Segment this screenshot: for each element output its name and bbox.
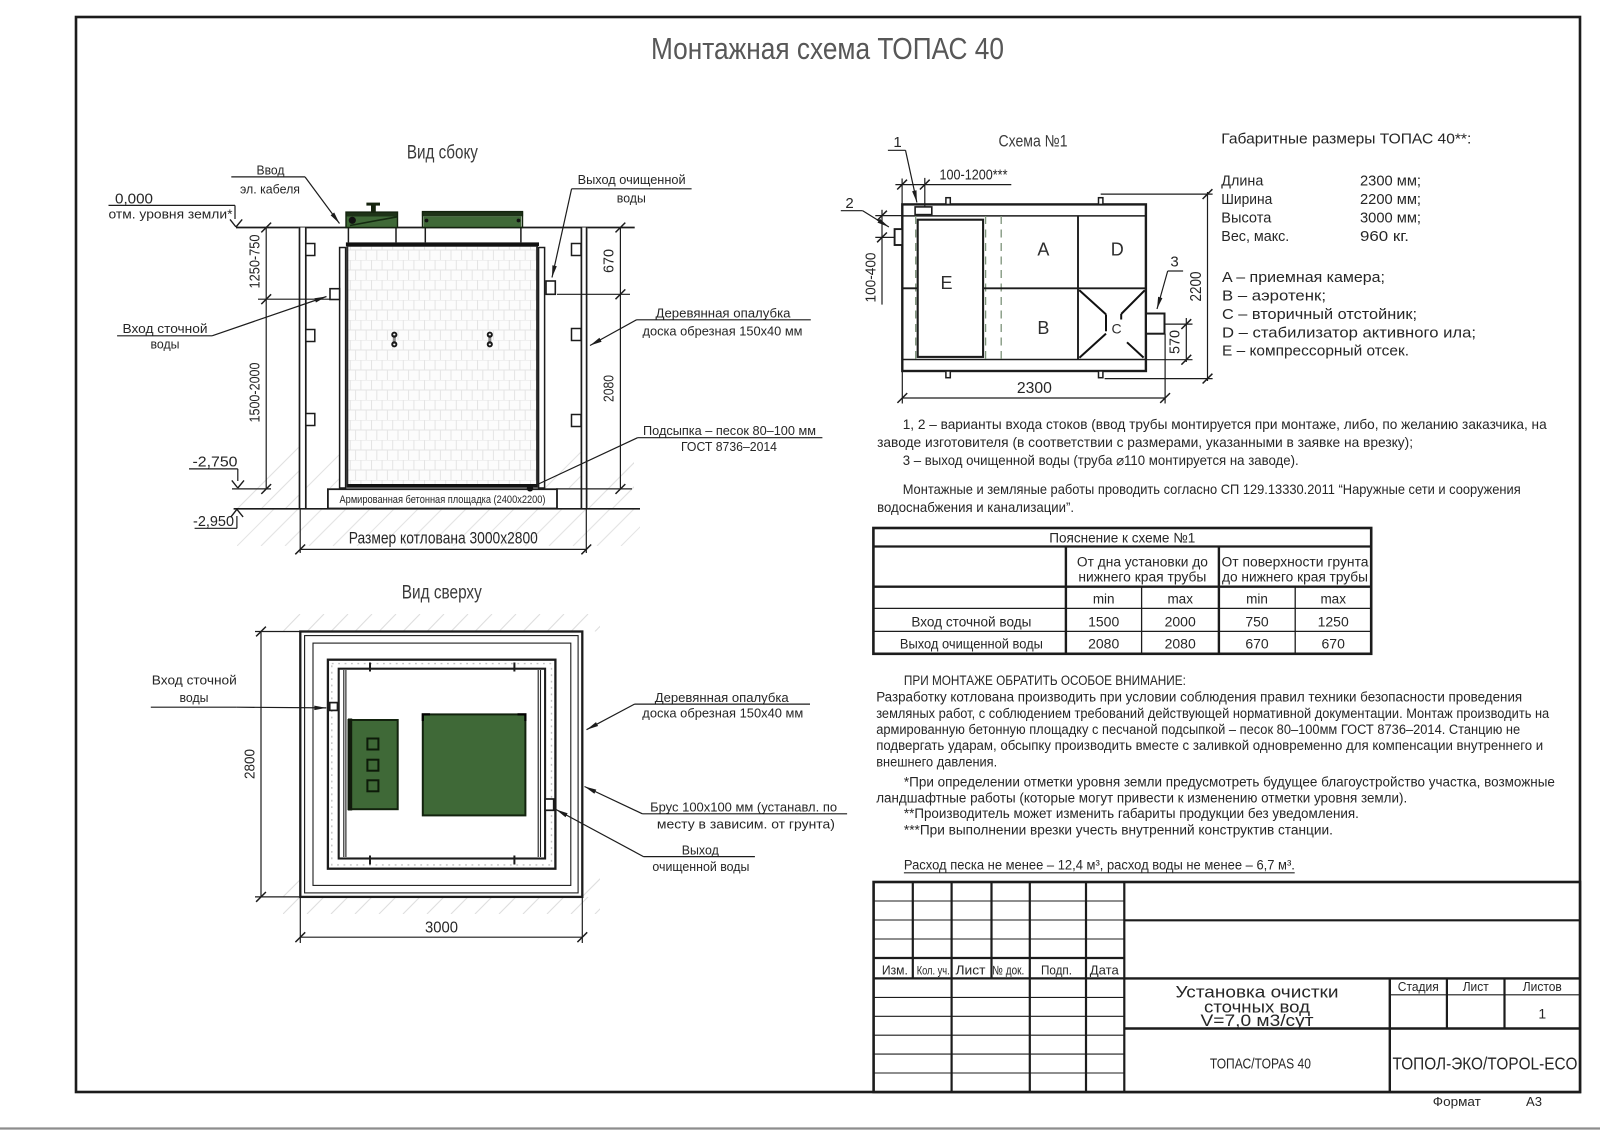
svg-text:А3: А3 — [1526, 1094, 1542, 1109]
svg-text:max: max — [1320, 592, 1346, 607]
svg-text:V=7,0 м3/сут: V=7,0 м3/сут — [1201, 1011, 1314, 1030]
svg-text:-2,750: -2,750 — [193, 454, 238, 471]
svg-text:2200: 2200 — [1188, 271, 1205, 301]
svg-text:воды: воды — [617, 191, 646, 206]
svg-text:3: 3 — [1170, 254, 1178, 271]
svg-text:100-400: 100-400 — [863, 253, 880, 303]
svg-text:Габаритные размеры ТОПАС 40**:: Габаритные размеры ТОПАС 40**: — [1221, 131, 1471, 148]
svg-text:min: min — [1093, 592, 1115, 607]
svg-text:Монтажные и земляные работы пр: Монтажные и земляные работы проводить со… — [903, 481, 1521, 497]
svg-text:D: D — [1111, 240, 1124, 260]
svg-text:Формат: Формат — [1433, 1094, 1481, 1109]
svg-text:Вход сточной: Вход сточной — [152, 672, 237, 687]
svg-text:Вес, макс.: Вес, макс. — [1221, 228, 1289, 245]
svg-text:Листов: Листов — [1523, 979, 1562, 994]
svg-text:670: 670 — [1322, 635, 1346, 651]
svg-text:3000 мм;: 3000 мм; — [1360, 209, 1421, 226]
svg-text:Ширина: Ширина — [1221, 191, 1273, 208]
svg-text:Ввод: Ввод — [257, 163, 285, 178]
svg-text:Дата: Дата — [1090, 963, 1120, 978]
svg-text:Выход: Выход — [682, 842, 719, 857]
svg-text:E – компрессорный отсек.: E – компрессорный отсек. — [1222, 343, 1409, 360]
svg-text:2080: 2080 — [1165, 635, 1196, 651]
svg-text:B: B — [1037, 318, 1049, 338]
svg-text:**Производитель может изменить: **Производитель может изменить габариты … — [904, 806, 1359, 821]
svg-text:Выход очищенной воды: Выход очищенной воды — [900, 635, 1043, 651]
svg-text:От дна установки до: От дна установки до — [1077, 555, 1208, 570]
svg-text:2080: 2080 — [1088, 635, 1119, 651]
svg-text:D – стабилизатор активного ила: D – стабилизатор активного ила; — [1222, 324, 1476, 341]
svg-text:2: 2 — [845, 195, 853, 212]
svg-text:очищенной воды: очищенной воды — [652, 859, 749, 874]
svg-text:Вид сверху: Вид сверху — [402, 582, 482, 603]
svg-text:Лист: Лист — [1463, 979, 1489, 994]
svg-text:отм. уровня земли*: отм. уровня земли* — [109, 207, 233, 222]
svg-text:От поверхности грунта: От поверхности грунта — [1222, 555, 1369, 570]
svg-text:Высота: Высота — [1221, 209, 1272, 226]
svg-text:Вход сточной воды: Вход сточной воды — [911, 613, 1031, 629]
svg-text:3 – выход очищенной воды (труб: 3 – выход очищенной воды (труба ⌀110 мон… — [903, 452, 1299, 468]
svg-text:***При выполнении врезки учест: ***При выполнении врезки учесть внутренн… — [904, 822, 1333, 837]
svg-text:1, 2 – варианты входа стоков: 1, 2 – варианты входа стоков (ввод трубы… — [903, 416, 1547, 432]
svg-text:2000: 2000 — [1165, 613, 1196, 629]
svg-text:2300: 2300 — [1017, 380, 1052, 397]
svg-text:воды: воды — [180, 690, 209, 705]
svg-text:Подсыпка – песок 80–100 мм: Подсыпка – песок 80–100 мм — [643, 423, 816, 438]
svg-text:месту в зависим. от грунта): месту в зависим. от грунта) — [657, 817, 835, 832]
svg-text:-2,950: -2,950 — [193, 513, 234, 530]
svg-text:ТОПОЛ-ЭКО/TOPOL-ECO: ТОПОЛ-ЭКО/TOPOL-ECO — [1393, 1054, 1578, 1074]
svg-text:B – аэротенк;: B – аэротенк; — [1222, 287, 1326, 304]
svg-text:нижнего края трубы: нижнего края трубы — [1078, 570, 1206, 585]
svg-text:эл. кабеля: эл. кабеля — [240, 182, 300, 197]
svg-text:ландшафтные работы (которые мо: ландшафтные работы (которые могут привес… — [876, 791, 1407, 806]
svg-text:воды: воды — [151, 337, 180, 352]
svg-text:E: E — [940, 273, 952, 293]
svg-text:внешнего давления.: внешнего давления. — [876, 754, 997, 769]
svg-text:*При определении отметки уровн: *При определении отметки уровня земли пр… — [904, 774, 1555, 789]
svg-text:Выход очищенной: Выход очищенной — [578, 172, 686, 187]
svg-text:960 кг.: 960 кг. — [1360, 228, 1409, 245]
svg-text:3000: 3000 — [425, 920, 458, 937]
svg-text:Длина: Длина — [1221, 172, 1264, 189]
svg-text:Деревянная опалубка: Деревянная опалубка — [656, 305, 792, 320]
svg-text:750: 750 — [1245, 613, 1269, 629]
svg-text:армированную бетонную площадку: армированную бетонную площадку с песчано… — [876, 722, 1520, 737]
svg-text:max: max — [1167, 592, 1193, 607]
svg-text:1: 1 — [893, 134, 901, 151]
svg-text:2080: 2080 — [601, 375, 618, 402]
svg-text:100-1200***: 100-1200*** — [940, 166, 1008, 183]
svg-text:до нижнего края трубы: до нижнего края трубы — [1222, 570, 1368, 585]
svg-text:Разработку котлована производи: Разработку котлована производить при усл… — [876, 690, 1522, 705]
svg-text:570: 570 — [1167, 330, 1184, 354]
svg-text:ТОПАС/TOPAS 40: ТОПАС/TOPAS 40 — [1210, 1057, 1311, 1073]
svg-text:земляных работ, с соблюдением: земляных работ, с соблюдением требований… — [876, 706, 1549, 721]
svg-text:1250-750: 1250-750 — [247, 235, 264, 289]
svg-text:Лист: Лист — [956, 963, 986, 978]
svg-text:2200 мм;: 2200 мм; — [1360, 191, 1421, 208]
svg-text:Вход сточной: Вход сточной — [123, 321, 208, 336]
svg-text:заводе изготовителя (в соответ: заводе изготовителя (в соответствии с ра… — [877, 434, 1413, 450]
svg-text:Армированная бетонная площадка: Армированная бетонная площадка (2400х220… — [340, 494, 546, 506]
svg-text:C: C — [1111, 321, 1121, 337]
svg-text:Подп.: Подп. — [1041, 963, 1072, 978]
svg-text:A: A — [1037, 240, 1049, 260]
svg-text:доска обрезная 150х40 мм: доска обрезная 150х40 мм — [642, 706, 803, 721]
svg-text:Брус 100х100 мм (устанавл. по: Брус 100х100 мм (устанавл. по — [650, 800, 837, 815]
svg-text:Изм.: Изм. — [882, 963, 908, 978]
svg-text:доска обрезная 150х40 мм: доска обрезная 150х40 мм — [643, 323, 803, 338]
svg-text:2300 мм;: 2300 мм; — [1360, 172, 1421, 189]
svg-text:C – вторичный отстойник;: C – вторичный отстойник; — [1222, 306, 1417, 323]
svg-text:A – приемная камера;: A – приемная камера; — [1222, 269, 1385, 286]
svg-text:Деревянная опалубка: Деревянная опалубка — [655, 690, 790, 705]
svg-text:водоснабжения и канализации”.: водоснабжения и канализации”. — [877, 499, 1074, 515]
svg-text:Вид сбоку: Вид сбоку — [407, 143, 478, 164]
svg-text:2800: 2800 — [242, 749, 259, 779]
svg-text:№ док.: № док. — [992, 964, 1024, 978]
svg-text:Пояснение к схеме №1: Пояснение к схеме №1 — [1049, 530, 1195, 546]
svg-text:1250: 1250 — [1318, 613, 1349, 629]
svg-text:1500: 1500 — [1088, 613, 1119, 629]
svg-text:670: 670 — [1245, 635, 1269, 651]
svg-text:Размер котлована 3000х2800: Размер котлована 3000х2800 — [349, 530, 538, 548]
svg-text:подвергать ударам, обсыпку про: подвергать ударам, обсыпку производить в… — [876, 738, 1543, 753]
svg-text:min: min — [1246, 592, 1268, 607]
svg-text:1500-2000: 1500-2000 — [247, 363, 264, 423]
svg-text:Схема №1: Схема №1 — [999, 133, 1068, 151]
svg-text:ГОСТ 8736–2014: ГОСТ 8736–2014 — [681, 439, 777, 454]
svg-text:670: 670 — [601, 249, 618, 273]
svg-text:Кол. уч.: Кол. уч. — [917, 966, 950, 978]
svg-text:Монтажная схема ТОПАС 40: Монтажная схема ТОПАС 40 — [651, 31, 1004, 66]
svg-text:Стадия: Стадия — [1398, 979, 1439, 994]
svg-text:Расход песка не менее – 12,4 м: Расход песка не менее – 12,4 м³, расход … — [904, 857, 1295, 872]
svg-text:ПРИ МОНТАЖЕ ОБРАТИТЬ ОСОБОЕ ВН: ПРИ МОНТАЖЕ ОБРАТИТЬ ОСОБОЕ ВНИМАНИЕ: — [904, 673, 1186, 688]
svg-text:1: 1 — [1538, 1006, 1546, 1022]
